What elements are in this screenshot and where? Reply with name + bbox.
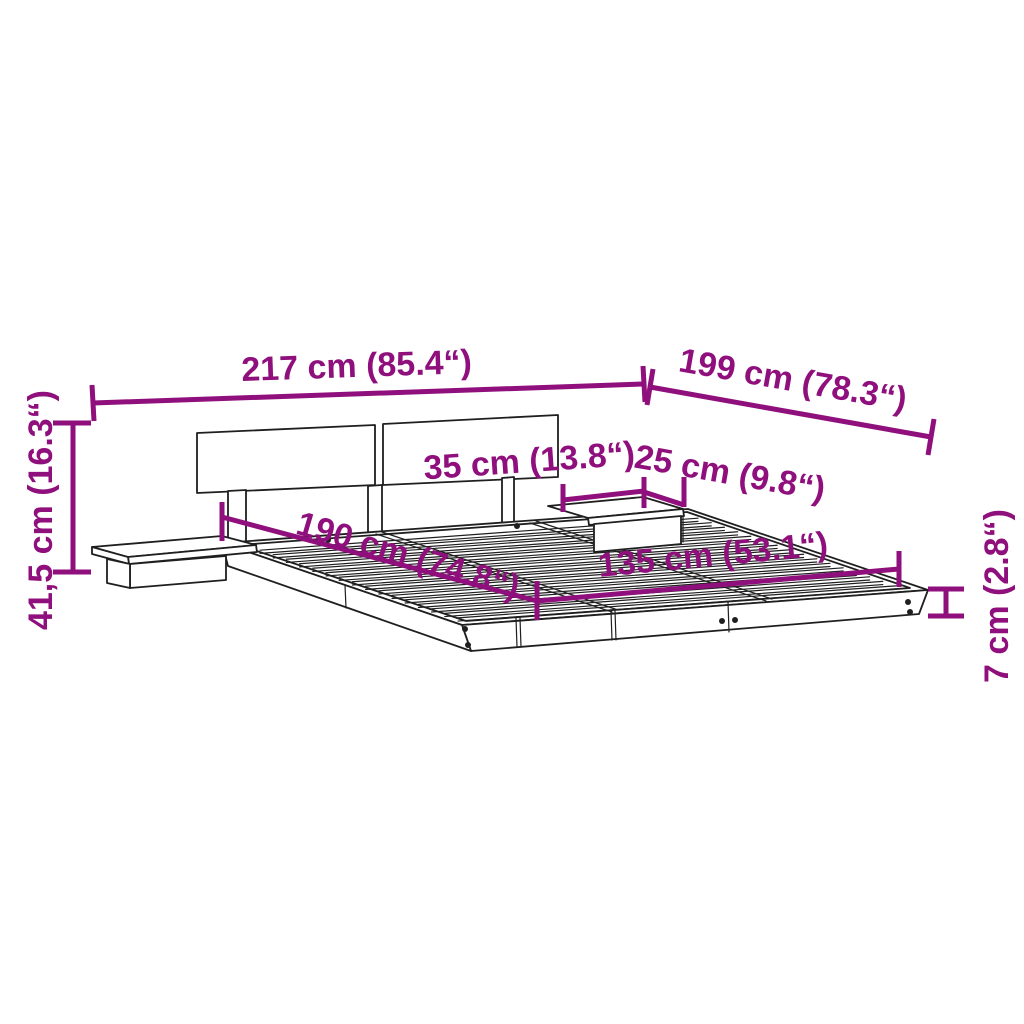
dimension-platform-height-label: 7 cm (2.8“)	[978, 509, 1016, 683]
bed-dimension-diagram: 217 cm (85.4“) 199 cm (78.3“) 41,5 cm (1…	[0, 0, 1024, 1024]
headboard-post-right	[502, 477, 514, 524]
headboard-left-panel	[197, 425, 375, 493]
headboard-post-left	[228, 490, 246, 543]
dimension-total-height-label: 41,5 cm (16.3“)	[22, 390, 60, 630]
dimension-overall-width-label: 217 cm (85.4“)	[241, 343, 473, 389]
nightstand-left-box-side	[107, 559, 130, 588]
